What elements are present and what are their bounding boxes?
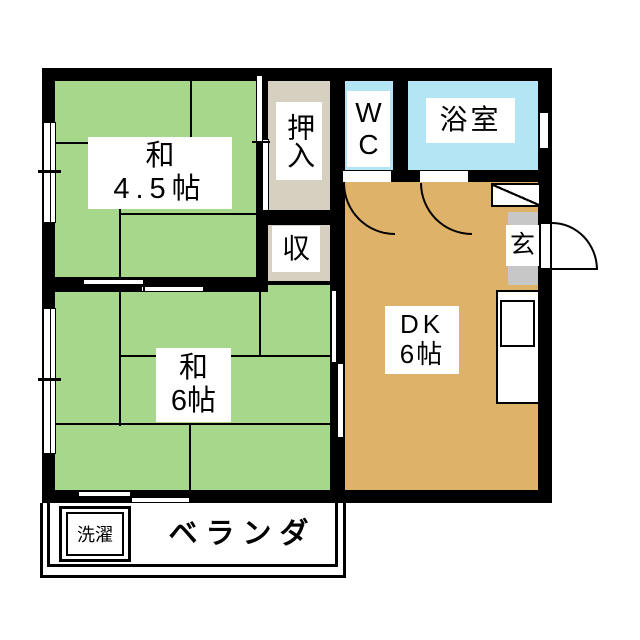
room-name: 和 <box>179 352 208 385</box>
sliding-door-tick <box>330 362 345 364</box>
entry-door-panel <box>539 222 552 270</box>
laundry-label: 洗濯 <box>77 521 113 547</box>
room-size: 6帖 <box>400 340 444 370</box>
kitchen-sink-icon <box>500 300 535 347</box>
washing-machine-label-box: 洗濯 <box>66 512 124 556</box>
room-name: 収 <box>282 233 310 265</box>
room-label-washitsu-6: 和 6帖 <box>156 348 231 422</box>
bath-door-threshold <box>420 171 468 182</box>
room-label-wc: W C <box>347 91 390 167</box>
sliding-door-tick <box>252 141 270 143</box>
sliding-door-icon <box>78 491 132 497</box>
sliding-door-tick <box>143 277 145 292</box>
window-tick <box>38 378 61 381</box>
sliding-door-icon <box>83 279 145 285</box>
wall-wc-bath-divider <box>393 68 408 182</box>
veranda-label: ベランダ <box>140 508 345 554</box>
room-washitsu-6-floor-notch <box>268 285 330 490</box>
room-label-oshiire: 押入 <box>276 102 322 180</box>
bath-window-icon <box>539 112 549 149</box>
entry-door-swing-icon <box>552 222 598 270</box>
room-label-storage: 収 <box>272 226 320 272</box>
floor-plan: 洗濯 ベランダ 和 4.5帖 押入 収 W C 浴室 DK 6帖 和 6帖 玄 <box>0 0 640 640</box>
wc-door-threshold <box>343 171 391 182</box>
tatami-line <box>119 213 256 215</box>
room-name: 浴室 <box>439 104 501 136</box>
room-label-dk: DK 6帖 <box>385 306 459 374</box>
sliding-door-icon <box>337 363 344 438</box>
window-tick <box>38 170 61 173</box>
room-name: 和 <box>145 140 174 173</box>
room-name-line2: C <box>358 129 378 161</box>
room-name: DK <box>400 310 444 340</box>
wall-closet-divider <box>256 210 345 225</box>
room-name: 押入 <box>283 113 315 169</box>
room-name: 玄 <box>510 231 535 260</box>
window-icon <box>43 308 56 454</box>
sliding-door-icon <box>256 75 263 143</box>
room-size: 6帖 <box>171 385 216 418</box>
tatami-line <box>119 292 121 426</box>
tatami-line <box>259 292 261 357</box>
shoe-cabinet-icon <box>491 183 541 207</box>
room-name-line1: W <box>355 97 381 129</box>
room-size: 4.5帖 <box>113 173 206 206</box>
room-label-washitsu-4-5: 和 4.5帖 <box>88 137 232 209</box>
tatami-line <box>189 423 191 490</box>
room-label-bathroom: 浴室 <box>426 98 515 143</box>
sliding-door-icon <box>141 286 204 292</box>
wall-top <box>42 68 552 81</box>
sliding-door-tick <box>130 490 132 503</box>
sliding-door-icon <box>331 290 337 365</box>
tatami-line <box>55 423 330 425</box>
sliding-door-icon <box>262 139 269 211</box>
room-label-genkan: 玄 <box>506 225 539 266</box>
tatami-line <box>190 81 192 144</box>
